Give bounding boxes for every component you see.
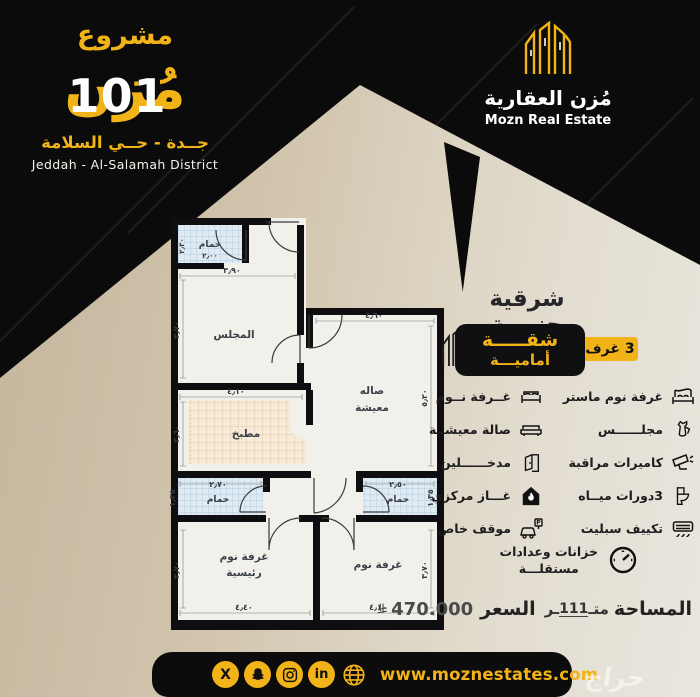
poster-root: مشروع مُزن 101 جــدة - حــي السلامة Jedd… xyxy=(0,0,700,697)
website-url[interactable]: www.moznestates.com xyxy=(380,665,598,684)
svg-text:P: P xyxy=(536,519,541,526)
background-ribbon-tail xyxy=(444,142,480,292)
feature-item: صالة معيشــة xyxy=(428,417,544,443)
rooms-count-badge: 3 غرف xyxy=(582,337,638,361)
area-value: 111 xyxy=(559,602,588,617)
buildings-icon xyxy=(478,18,618,80)
linkedin-icon[interactable]: in xyxy=(308,661,335,688)
feature-row: غرفة نوم ماستر غــرفة نــوم xyxy=(428,380,696,413)
svg-text:مطبخ: مطبخ xyxy=(232,428,261,440)
meter-gauge-icon xyxy=(606,543,640,577)
svg-text:٣٫٩٠: ٣٫٩٠ xyxy=(223,266,241,275)
cctv-camera-icon xyxy=(670,450,696,476)
feature-row: مجلــــــس صالة معيشــة xyxy=(428,413,696,446)
feature-item: 3دورات ميــاه xyxy=(544,483,696,509)
badge-line2: أماميـــة xyxy=(490,351,550,370)
svg-text:غرفة نوم: غرفة نوم xyxy=(354,559,403,571)
instagram-icon[interactable] xyxy=(276,661,303,688)
feature-item: كاميرات مراقبة xyxy=(544,450,696,476)
svg-text:١٫٣٥: ١٫٣٥ xyxy=(168,489,177,507)
toilet-icon xyxy=(670,483,696,509)
brand-name-arabic: مُزن العقارية xyxy=(478,86,618,110)
door-icon xyxy=(518,450,544,476)
feature-item: تكييف سبليت xyxy=(544,516,696,542)
svg-text:٢٫٣٠: ٢٫٣٠ xyxy=(178,238,186,253)
gas-flame-house-icon xyxy=(518,483,544,509)
svg-text:٣٫٧٠: ٣٫٧٠ xyxy=(172,561,181,579)
svg-text:٤٫٦٠: ٤٫٦٠ xyxy=(365,311,383,320)
brand-name-english: Mozn Real Estate xyxy=(478,113,618,128)
svg-text:٢٫٥٠: ٢٫٥٠ xyxy=(389,480,407,489)
project-label: مشروع xyxy=(18,20,232,51)
brand-block: مُزن العقارية Mozn Real Estate xyxy=(478,18,618,128)
location-english: Jeddah - Al-Salamah District xyxy=(18,157,232,172)
svg-text:حمام: حمام xyxy=(207,495,230,505)
svg-text:٤٫٤٠: ٤٫٤٠ xyxy=(235,603,253,612)
area-unit-left: ـر xyxy=(545,600,559,618)
background-deco-line xyxy=(0,157,184,342)
project-name: مُزن 101 xyxy=(18,53,232,127)
feature-item: P موقف خاص xyxy=(428,516,544,542)
project-title-block: مشروع مُزن 101 جــدة - حــي السلامة Jedd… xyxy=(18,20,232,172)
area-label: المساحة xyxy=(614,598,692,620)
svg-text:حمام: حمام xyxy=(199,240,222,250)
area-price-line: المساحة متـ 111 ـر السعر 470.000 xyxy=(398,598,692,620)
globe-icon[interactable] xyxy=(340,661,367,688)
x-icon[interactable]: X xyxy=(212,661,239,688)
location-arabic: جــدة - حــي السلامة xyxy=(18,133,232,152)
footer-bar: X in www.moznestates.com xyxy=(152,652,572,697)
apartment-type-badge: شقـــــة أماميـــة xyxy=(455,324,585,376)
svg-text:٣٫٧٠: ٣٫٧٠ xyxy=(172,321,181,339)
badge-line1: شقـــــة xyxy=(482,330,558,351)
svg-text:رئيسية: رئيسية xyxy=(226,567,262,579)
feature-item-tanks-meters: خزانات وعدادات مستقلـــة xyxy=(498,543,640,577)
svg-text:٢٫٠٠: ٢٫٠٠ xyxy=(202,252,217,260)
split-ac-icon xyxy=(670,516,696,542)
price-label: السعر xyxy=(480,598,536,620)
price-value: 470.000 xyxy=(391,599,473,620)
svg-text:٤٫١٠: ٤٫١٠ xyxy=(227,387,245,396)
svg-text:المجلس: المجلس xyxy=(213,329,254,341)
svg-text:معيشة: معيشة xyxy=(355,402,389,414)
feature-item: مدخــــــلين xyxy=(428,450,544,476)
feature-item: غرفة نوم ماستر xyxy=(544,384,696,410)
svg-text:حمام: حمام xyxy=(387,495,410,505)
features-list: غرفة نوم ماستر غــرفة نــوم مجلــــــس xyxy=(428,380,696,545)
feature-row: كاميرات مراقبة مدخــــــلين xyxy=(428,446,696,479)
feature-label: خزانات وعدادات مستقلـــة xyxy=(500,543,598,577)
sofa-icon xyxy=(518,417,544,443)
area-unit-right: متـ xyxy=(588,600,609,618)
saudi-riyal-symbol xyxy=(376,602,389,616)
master-bed-icon xyxy=(670,384,696,410)
svg-text:٢٫٧٠: ٢٫٧٠ xyxy=(209,480,227,489)
svg-text:صاله: صاله xyxy=(360,385,384,397)
svg-text:٢٫٦٠: ٢٫٦٠ xyxy=(172,425,181,443)
snapchat-icon[interactable] xyxy=(244,661,271,688)
svg-text:غرفة نوم: غرفة نوم xyxy=(220,551,269,563)
project-number: 101 xyxy=(68,69,167,123)
svg-text:٣٫٧٠: ٣٫٧٠ xyxy=(420,561,429,579)
floor-plan: ٣٫٩٠ ٣٫٧٠ ٤٫٦٠ ٥٫٢٠ ٤٫١٠ ٢٫٦٠ ٢٫٧٠ ١٫٣٥ … xyxy=(166,218,448,638)
feature-item: غــرفة نــوم xyxy=(428,384,544,410)
bed-icon xyxy=(518,384,544,410)
dallah-coffee-pot-icon xyxy=(670,417,696,443)
feature-row: تكييف سبليت P موقف خاص xyxy=(428,512,696,545)
haraj-watermark: حراج xyxy=(583,663,647,692)
feature-row: 3دورات ميــاه غـــاز مركزي xyxy=(428,479,696,512)
feature-item: غـــاز مركزي xyxy=(428,483,544,509)
car-parking-icon: P xyxy=(518,516,544,542)
feature-item: مجلــــــس xyxy=(544,417,696,443)
